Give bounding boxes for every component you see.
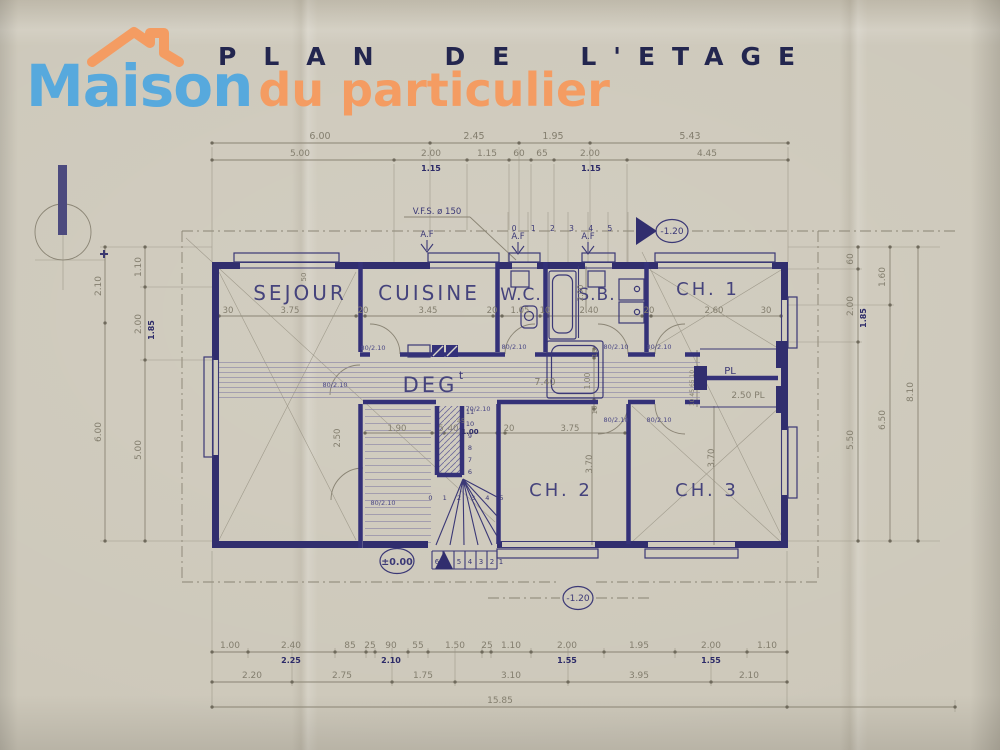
room-label-deg: DEG	[403, 373, 458, 397]
dim-100-dark: 1.00	[461, 428, 478, 436]
dim-left-210: 2.10	[94, 276, 104, 296]
dim-mid-20: 20	[504, 424, 515, 434]
marker-bar	[58, 165, 67, 235]
room-label-ch1: CH. 1	[676, 279, 740, 300]
door-label: 80/2.10	[323, 381, 348, 389]
dim-pl-stack: 10 45 65 10	[689, 370, 696, 406]
dim-b1-85: 85	[344, 641, 355, 651]
dim-b1-dark-225: 2.25	[281, 656, 301, 665]
dim-hall-10a: 10	[591, 349, 599, 358]
dim-b1-195: 1.95	[629, 641, 649, 651]
dim-in-20a: 20	[358, 306, 369, 316]
pencil-lines-layer	[35, 143, 956, 712]
door-label: 80/2.10	[604, 343, 629, 351]
label-af-2: A.F	[511, 232, 524, 242]
dim-right-810: 8.10	[906, 382, 916, 402]
stair-numbers-top: 0 1 2 3 4 5	[512, 224, 619, 233]
dim-b2-395: 3.95	[629, 671, 649, 681]
stair-col-10: 10	[466, 420, 474, 428]
dim-b1-90: 90	[385, 641, 397, 651]
door-label-70: 70/2.10	[466, 405, 491, 413]
dim-top2-445: 4.45	[697, 149, 717, 159]
door-label: 80/2.10	[647, 343, 672, 351]
dim-in-240: 2.40	[580, 306, 599, 316]
dim-top2-65: 65	[536, 149, 547, 159]
label-placard-dim: 2.50 PL	[731, 391, 764, 401]
dim-b1-25b: 25	[481, 641, 492, 651]
label-placard: PL	[724, 366, 736, 377]
dim-top2-500: 5.00	[290, 149, 310, 159]
dim-b1-200b: 2.00	[701, 641, 721, 651]
dim-in-20b: 20	[487, 306, 498, 316]
dim-b1-25a: 25	[364, 641, 375, 651]
dim-mid-40: 40	[448, 424, 459, 434]
maison-du-particulier-logo: Maison du particulier	[26, 52, 610, 120]
dim-in-260: 2.60	[705, 306, 724, 316]
room-label-cuisine: CUISINE	[378, 281, 480, 305]
stair-step-3: 3	[479, 558, 483, 566]
room-label-wc: W.C.	[500, 285, 542, 305]
room-label-deg-sup: t	[459, 369, 464, 382]
dim-mid-5: 5	[438, 424, 443, 434]
dim-top1-245: 2.45	[463, 131, 484, 142]
room-label-sejour: SEJOUR	[253, 281, 347, 305]
dim-left-600: 6.00	[94, 422, 104, 442]
dim-in-10: 10	[540, 306, 551, 316]
stair-col-8: 8	[468, 444, 472, 452]
dim-mid-375: 3.75	[561, 424, 580, 434]
stair-numbers-inner: 0 1 2 3 4 5	[428, 494, 507, 502]
dim-b1-dark-155b: 1.55	[701, 656, 721, 665]
dim-b2-275: 2.75	[332, 671, 352, 681]
dim-right-200: 2.00	[846, 296, 856, 316]
roof-icon	[84, 20, 196, 68]
dim-b3-1585: 15.85	[487, 696, 513, 706]
title-word-etage: L'ETAGE	[580, 42, 812, 71]
dim-b1-110b: 1.10	[757, 641, 777, 651]
label-af-1: A.F	[420, 230, 433, 240]
door-label: 80/2.10	[647, 416, 672, 424]
dim-top2-60: 60	[513, 149, 525, 159]
stair-col-7: 7	[468, 456, 472, 464]
dim-top2-200a: 2.00	[421, 149, 441, 159]
room-label-ch3: CH. 3	[675, 480, 739, 501]
stair-step-2: 2	[490, 558, 494, 566]
dim-left-250: 2.50	[333, 429, 343, 448]
dim-in-30a: 30	[223, 306, 234, 316]
dim-b2-220: 2.20	[242, 671, 262, 681]
dim-right-650: 6.50	[878, 410, 888, 430]
dim-top2-115: 1.15	[477, 149, 497, 159]
door-label: 80/2.10	[502, 343, 527, 351]
dim-top1-195: 1.95	[542, 131, 563, 142]
stair-direction-arrow-up	[636, 217, 657, 245]
dim-top2-dark-b: 1.15	[581, 164, 601, 173]
stair-winder-fan	[436, 479, 497, 545]
dim-b1-150: 1.50	[445, 641, 465, 651]
stair-step-6: 6	[435, 558, 440, 566]
registration-cross	[100, 250, 108, 258]
level-minus-top: -1.20	[660, 227, 684, 237]
dim-b1-55: 55	[412, 641, 423, 651]
label-vfs: V.F.S. ø 150	[413, 207, 462, 217]
dim-left-dark: 1.85	[147, 320, 156, 340]
stair-step-1: 1	[499, 558, 503, 566]
dim-b1-240: 2.40	[281, 641, 301, 651]
room-label-ch2: CH. 2	[529, 480, 593, 501]
dim-right-550: 5.50	[846, 430, 856, 450]
dim-hall-10b: 10	[591, 406, 599, 415]
stair-col-6: 6	[468, 468, 472, 476]
door-label: 80/2.10	[361, 344, 386, 352]
dim-b1-200a: 2.00	[557, 641, 577, 651]
stair-step-4: 4	[468, 558, 473, 566]
dim-ch2-height: 3.70	[585, 455, 595, 474]
dim-left-110: 1.10	[134, 257, 144, 277]
dim-mid-190: 1.90	[388, 424, 407, 434]
dim-hall-740: 7.40	[534, 377, 555, 388]
dim-right-dark: 1.85	[859, 308, 868, 328]
dim-b1-110a: 1.10	[501, 641, 521, 651]
dim-right-160: 1.60	[878, 267, 888, 287]
dim-b1-dark-155a: 1.55	[557, 656, 577, 665]
dim-b2-175: 1.75	[413, 671, 433, 681]
dim-left-500: 5.00	[134, 440, 144, 460]
stair-step-5: 5	[457, 558, 461, 566]
dim-in-30b: 30	[761, 306, 772, 316]
labels-layer: SEJOUR CUISINE W.C. S.B. CH. 1 DEG t CH.…	[94, 131, 916, 706]
dim-b2-310: 3.10	[501, 671, 521, 681]
door-label: 80/2.10	[604, 416, 629, 424]
placard-post	[776, 386, 788, 413]
dim-in-345: 3.45	[419, 306, 438, 316]
dim-top2-dark-a: 1.15	[421, 164, 441, 173]
logo-word-du-particulier: du particulier	[258, 63, 610, 117]
dim-b2-210: 2.10	[739, 671, 759, 681]
dim-in-105: 1.05	[511, 306, 530, 316]
dim-left-200: 2.00	[134, 314, 144, 334]
label-af-3: A.F	[581, 232, 594, 242]
level-minus-bottom: -1.20	[566, 594, 590, 604]
dim-hall-width: 1.00	[583, 372, 592, 389]
dim-sb-200: 2.00	[576, 284, 585, 301]
dim-in-375: 3.75	[281, 306, 300, 316]
dim-top2-200b: 2.00	[580, 149, 600, 159]
dim-in-20c: 20	[644, 306, 655, 316]
level-zero: ±0.00	[381, 557, 413, 568]
dim-right-60: 60	[846, 253, 856, 265]
dim-top1-543: 5.43	[679, 131, 700, 142]
placard-post	[776, 341, 788, 368]
dim-50: 50	[300, 273, 308, 282]
dim-ch3-height: 3.70	[707, 449, 717, 468]
door-label: 80/2.10	[371, 499, 396, 507]
dim-top1-600: 6.00	[309, 131, 330, 142]
dim-b1-100: 1.00	[220, 641, 240, 651]
dim-b1-dark-210: 2.10	[381, 656, 401, 665]
vanity-cabinet	[619, 279, 644, 300]
